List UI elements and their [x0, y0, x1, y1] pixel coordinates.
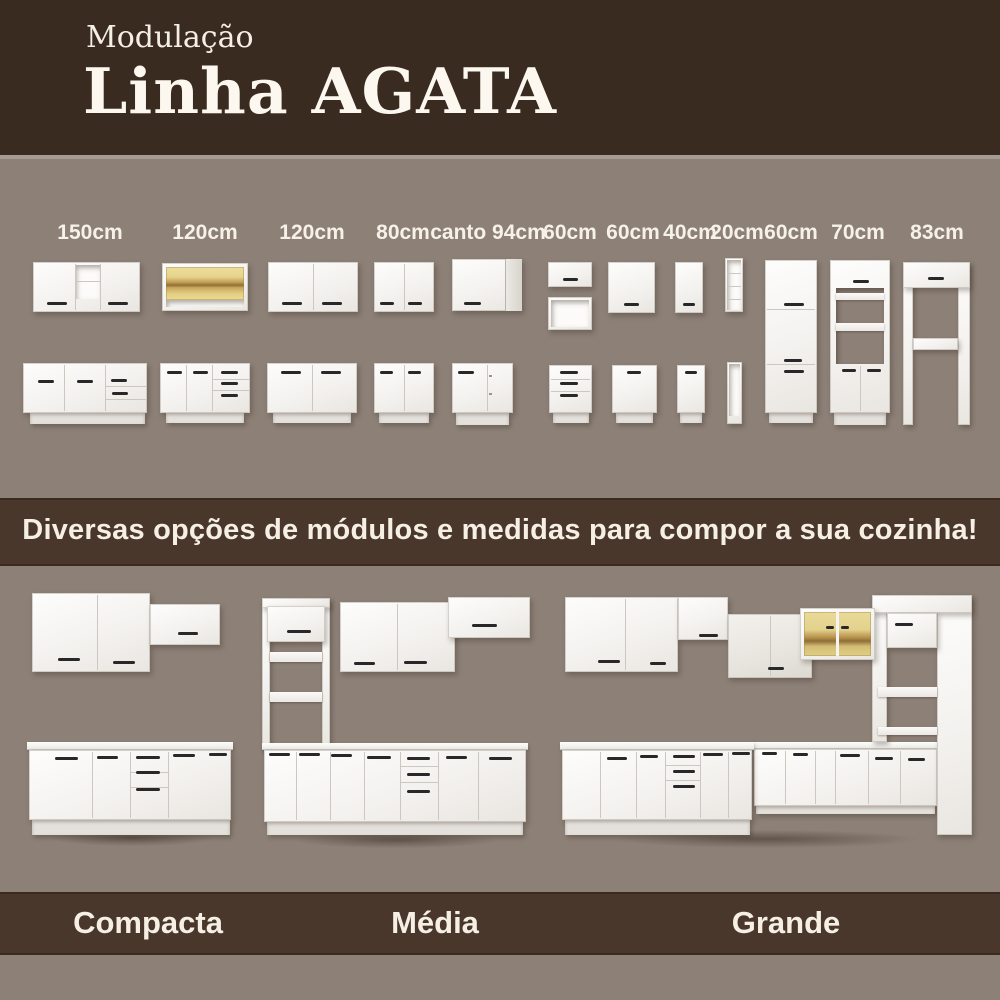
- hinge-dot: [489, 393, 492, 395]
- door-seam: [186, 365, 187, 411]
- header-subtitle: Modulação: [86, 20, 254, 55]
- plinth: [379, 413, 429, 423]
- door-seam: [330, 752, 331, 820]
- grande-base-run-front: [562, 750, 752, 820]
- handle: [407, 773, 430, 776]
- grande-wall-cabinet-hood: [678, 597, 728, 640]
- compacta-base-run: [29, 750, 231, 820]
- handle: [607, 757, 627, 760]
- door-seam: [860, 366, 861, 411]
- plinth: [30, 413, 145, 424]
- handle: [136, 771, 160, 774]
- media-tower-door: [267, 606, 325, 642]
- handle: [331, 754, 352, 757]
- handle: [853, 280, 869, 283]
- drawer-seam: [105, 399, 147, 400]
- media-base-run: [264, 750, 526, 822]
- handle: [673, 770, 695, 773]
- open-niche: [75, 265, 100, 299]
- door-seam: [97, 595, 98, 670]
- door-seam: [364, 752, 365, 820]
- drawer-seam: [105, 386, 147, 387]
- module-83-top-cabinet: [903, 262, 970, 288]
- header-separator: [0, 155, 1000, 159]
- drawer-seam: [212, 379, 250, 380]
- shelf: [270, 692, 322, 702]
- drawer-seam: [665, 765, 700, 766]
- handle: [784, 370, 804, 373]
- door-seam: [815, 751, 816, 804]
- handle: [193, 371, 208, 374]
- handle: [321, 371, 341, 374]
- grande-tower-door: [887, 613, 937, 648]
- handle: [167, 371, 182, 374]
- door-seam: [900, 751, 901, 804]
- handle: [624, 303, 639, 306]
- plinth: [553, 413, 589, 423]
- grande-tower-top: [872, 595, 972, 613]
- door-seam: [296, 752, 297, 820]
- door-seam: [767, 309, 815, 310]
- module-60a-wall-door: [548, 262, 592, 287]
- module-canto-wall-cabinet: [452, 259, 522, 311]
- handle: [673, 755, 695, 758]
- size-label-60c: 60cm: [764, 221, 818, 245]
- handle: [875, 757, 893, 760]
- kitchen-label-grande: Grande: [732, 905, 841, 941]
- size-label-20: 20cm: [710, 221, 764, 245]
- handle: [55, 757, 78, 760]
- handle: [407, 757, 430, 760]
- handle: [895, 623, 913, 626]
- size-label-40: 40cm: [663, 221, 717, 245]
- door-seam: [835, 751, 836, 804]
- door-seam: [100, 264, 101, 310]
- handle: [408, 302, 422, 305]
- handle: [464, 302, 481, 305]
- handle: [111, 379, 127, 382]
- module-120-base-cabinet: [160, 363, 250, 413]
- handle: [489, 757, 512, 760]
- plinth: [273, 413, 351, 423]
- drawer-seam: [551, 391, 590, 392]
- door-seam: [478, 752, 479, 820]
- handle: [77, 380, 93, 383]
- door-seam: [404, 264, 405, 310]
- handle: [380, 371, 393, 374]
- handle: [650, 662, 666, 665]
- handle: [404, 661, 427, 664]
- open-niche: [729, 364, 740, 416]
- shelf: [270, 652, 322, 662]
- media-wall-cabinet-short: [448, 597, 530, 638]
- door-seam: [130, 752, 131, 818]
- handle: [598, 660, 620, 663]
- door-seam: [168, 752, 169, 818]
- door-seam: [212, 365, 213, 411]
- handle: [221, 371, 238, 374]
- handle: [841, 626, 849, 629]
- shelf-line: [75, 281, 100, 282]
- shelf-line: [727, 273, 741, 274]
- media-wall-cabinet: [340, 602, 455, 672]
- handle: [842, 369, 856, 372]
- handle: [221, 394, 238, 397]
- handle: [287, 630, 311, 633]
- handle: [38, 380, 54, 383]
- shelf: [166, 300, 244, 307]
- compacta-countertop: [27, 742, 233, 750]
- handle: [380, 302, 394, 305]
- compacta-wall-cabinet-short: [150, 604, 220, 645]
- size-label-70: 70cm: [831, 221, 885, 245]
- handle: [209, 753, 227, 756]
- size-label-150: 150cm: [57, 221, 122, 245]
- handle: [58, 658, 80, 661]
- plinth: [456, 413, 509, 425]
- shelf-line: [727, 286, 741, 287]
- handle: [173, 754, 195, 757]
- handle: [685, 371, 697, 374]
- door-seam: [75, 264, 76, 310]
- handle: [784, 303, 804, 306]
- module-83-mid-shelf: [913, 338, 958, 350]
- promo-banner-text: Diversas opções de módulos e medidas par…: [0, 514, 1000, 547]
- handle: [322, 302, 342, 305]
- handle: [178, 632, 198, 635]
- handle: [784, 359, 802, 362]
- hinge-dot: [489, 375, 492, 377]
- compacta-wall-cabinet: [32, 593, 150, 672]
- handle: [112, 392, 128, 395]
- size-label-120b: 120cm: [279, 221, 344, 245]
- handle: [867, 369, 881, 372]
- handle: [673, 785, 695, 788]
- handle: [840, 754, 860, 757]
- plinth: [32, 820, 230, 835]
- handle: [826, 626, 834, 629]
- shelf: [878, 727, 937, 735]
- module-120b-base-cabinet: [267, 363, 357, 413]
- door-seam: [700, 752, 701, 818]
- handle: [928, 277, 944, 280]
- plinth: [756, 806, 935, 814]
- header-band: Modulação Linha AGATA: [0, 0, 1000, 155]
- door-seam: [404, 365, 405, 411]
- door-seam: [767, 364, 815, 365]
- module-120b-wall-cabinet: [268, 262, 358, 312]
- door-seam: [785, 751, 786, 804]
- door-seam: [625, 599, 626, 670]
- handle: [458, 371, 474, 374]
- module-80-base-cabinet: [374, 363, 434, 413]
- module-60-tall-cabinet: [765, 260, 817, 413]
- poster: Modulação Linha AGATA 150cm 120cm 120cm …: [0, 0, 1000, 1000]
- grande-countertop-front: [560, 742, 754, 750]
- size-label-canto: canto 94cm: [430, 221, 546, 245]
- plinth: [267, 822, 523, 835]
- plinth: [565, 820, 750, 835]
- corner-side-panel: [505, 259, 522, 311]
- handle: [640, 755, 658, 758]
- handle: [136, 788, 160, 791]
- handle: [560, 382, 578, 385]
- handle: [408, 371, 421, 374]
- handle: [281, 371, 301, 374]
- handle: [560, 371, 578, 374]
- handle: [113, 661, 135, 664]
- handle: [299, 753, 320, 756]
- door-seam: [665, 752, 666, 818]
- handle: [683, 303, 695, 306]
- handle: [47, 302, 67, 305]
- open-niche: [727, 260, 741, 310]
- size-label-80: 80cm: [376, 221, 430, 245]
- handle: [108, 302, 128, 305]
- size-label-83: 83cm: [910, 221, 964, 245]
- plinth: [166, 413, 244, 423]
- handle: [627, 371, 641, 374]
- drawer-seam: [665, 780, 700, 781]
- handle: [793, 753, 808, 756]
- plinth: [834, 413, 886, 425]
- drawer-seam: [400, 782, 438, 783]
- grande-tower-right-panel: [937, 595, 972, 835]
- plinth: [769, 413, 813, 423]
- module-70-oven-tower: [830, 260, 890, 413]
- door-seam: [868, 751, 869, 804]
- handle: [560, 394, 578, 397]
- handle: [908, 758, 925, 761]
- module-150-wall-cabinet: [33, 262, 140, 312]
- media-countertop: [262, 743, 528, 750]
- door-seam: [400, 752, 401, 820]
- open-niche: [551, 300, 589, 327]
- module-20-base-shelf: [727, 362, 742, 424]
- module-60b-base-cabinet: [612, 365, 657, 413]
- page-title: Linha AGATA: [83, 54, 557, 128]
- handle: [699, 634, 718, 637]
- handle: [221, 382, 238, 385]
- door-seam: [64, 365, 65, 411]
- door-seam: [636, 752, 637, 818]
- drawer-seam: [400, 766, 438, 767]
- module-40-wall-cabinet: [675, 262, 703, 313]
- handle: [563, 278, 578, 281]
- door-seam: [312, 365, 313, 411]
- module-60a-drawer-base: [549, 365, 592, 413]
- handle: [703, 753, 723, 756]
- module-20-wall-shelf: [725, 258, 743, 312]
- module-150-base-cabinet: [23, 363, 147, 413]
- door-seam: [438, 752, 439, 820]
- module-60b-wall-cabinet: [608, 262, 655, 313]
- handle: [732, 752, 750, 755]
- door-seam: [600, 752, 601, 818]
- door-seam: [728, 752, 729, 818]
- module-80-wall-cabinet: [374, 262, 434, 312]
- shelf: [836, 293, 884, 300]
- handle: [354, 662, 375, 665]
- grande-wall-cabinet: [565, 597, 678, 672]
- door-seam: [105, 365, 106, 411]
- wood-interior: [166, 267, 244, 300]
- plinth: [680, 413, 702, 423]
- grande-base-run-right: [754, 749, 937, 806]
- handle: [762, 752, 777, 755]
- handle: [367, 756, 391, 759]
- module-120-open-wall-cabinet: [162, 263, 248, 311]
- handle: [97, 756, 118, 759]
- drawer-seam: [551, 379, 590, 380]
- shelf: [878, 687, 937, 697]
- size-label-60a: 60cm: [543, 221, 597, 245]
- kitchen-label-compacta: Compacta: [73, 905, 223, 941]
- door-seam: [397, 604, 398, 670]
- grande-glass-wall-cabinet: [800, 608, 875, 660]
- shelf-line: [727, 299, 741, 300]
- size-label-60b: 60cm: [606, 221, 660, 245]
- handle: [269, 753, 290, 756]
- door-seam: [487, 365, 488, 411]
- handle: [446, 756, 467, 759]
- handle: [407, 790, 430, 793]
- door-seam: [92, 752, 93, 818]
- plinth: [616, 413, 653, 423]
- door-seam: [836, 612, 839, 656]
- module-60a-open-box: [548, 297, 592, 330]
- grande-countertop-right: [752, 742, 937, 749]
- drawer-seam: [212, 390, 250, 391]
- module-canto-base-cabinet: [452, 363, 513, 413]
- handle: [768, 667, 784, 670]
- shelf: [836, 323, 884, 331]
- handle: [472, 624, 497, 627]
- handle: [136, 756, 160, 759]
- size-label-120a: 120cm: [172, 221, 237, 245]
- module-40-base-cabinet: [677, 365, 705, 413]
- handle: [282, 302, 302, 305]
- kitchen-label-media: Média: [391, 905, 479, 941]
- door-seam: [313, 264, 314, 310]
